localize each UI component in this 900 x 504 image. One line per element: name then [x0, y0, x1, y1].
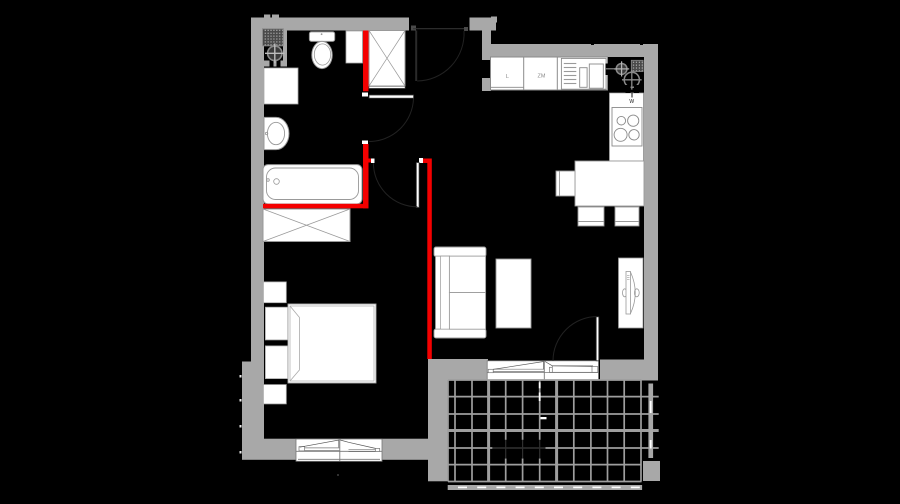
svg-text:ZM: ZM	[538, 74, 546, 80]
svg-text:W: W	[629, 99, 634, 105]
svg-text:L: L	[506, 74, 509, 80]
